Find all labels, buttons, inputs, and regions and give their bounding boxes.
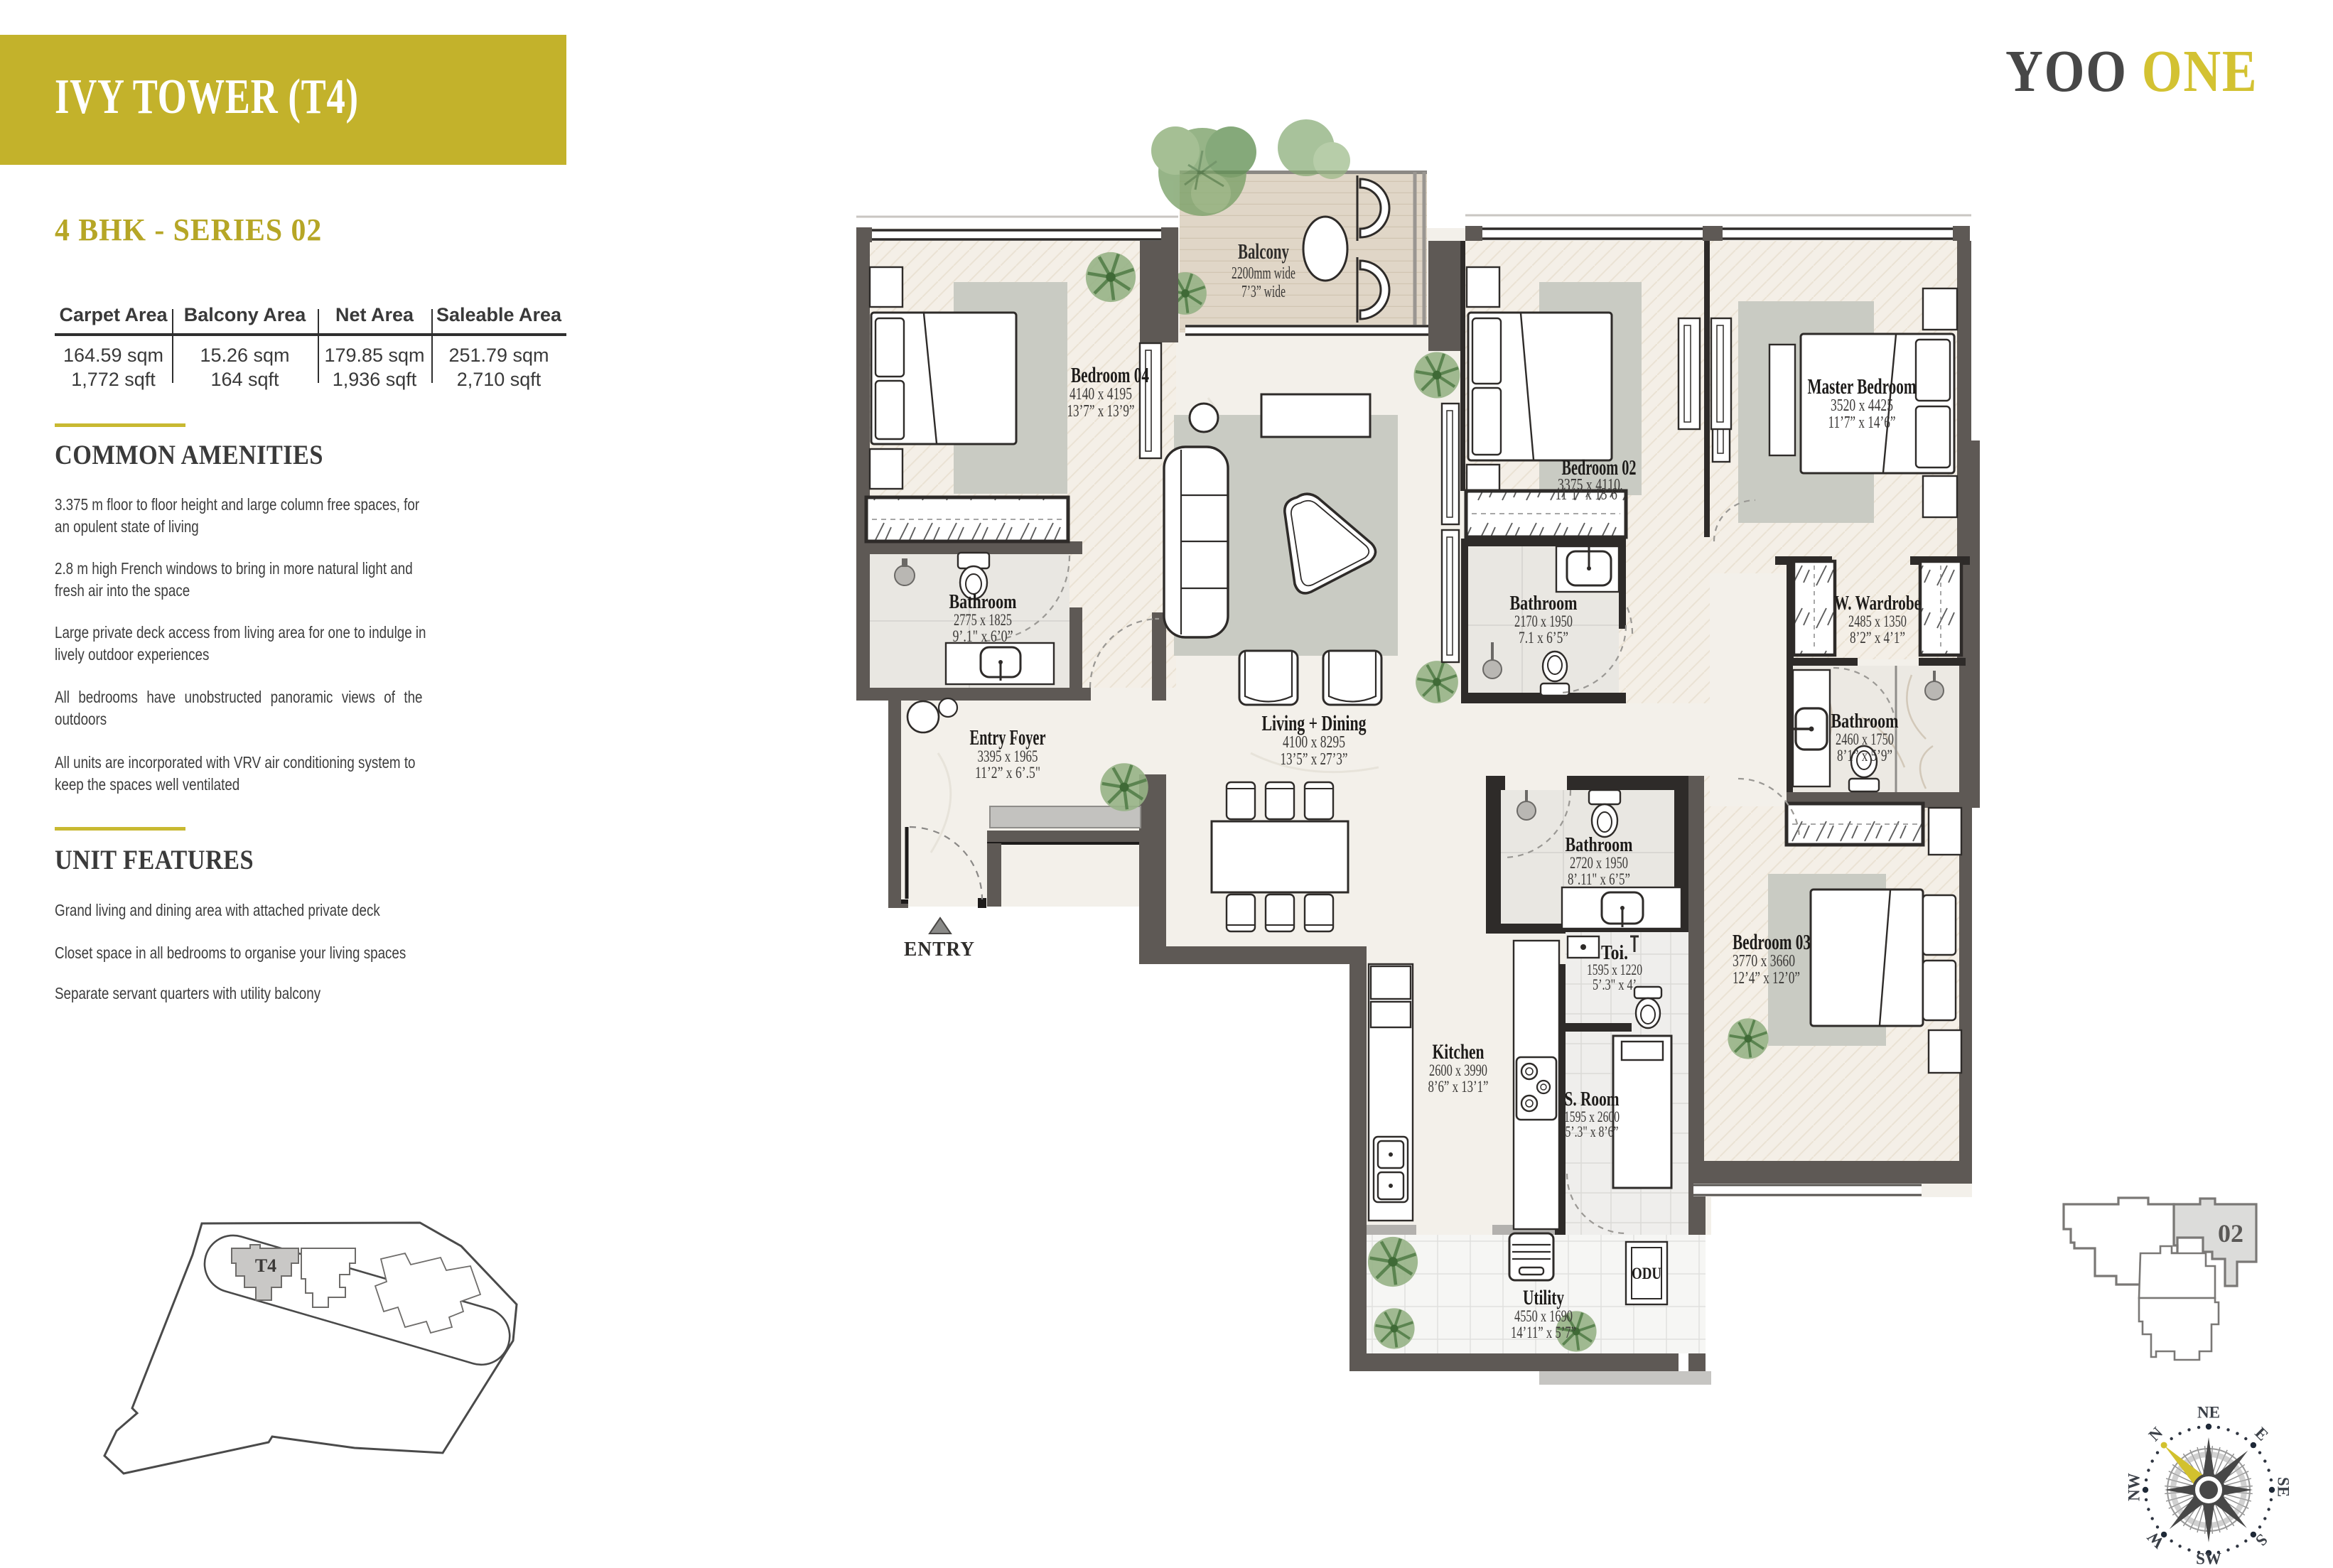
svg-text:Kitchen: Kitchen [1433,1040,1485,1064]
svg-text:8’1” x 5’9”: 8’1” x 5’9” [1837,747,1892,764]
svg-text:9’.1" x 6’0”: 9’.1" x 6’0” [953,627,1013,645]
svg-text:NW: NW [2125,1473,2143,1501]
svg-text:Bathroom: Bathroom [1510,592,1578,615]
svg-text:11’7” x 14’6”: 11’7” x 14’6” [1828,413,1896,432]
svg-text:11’1” x 13’6”: 11’1” x 13’6” [1556,485,1623,504]
svg-text:2600 x 3990: 2600 x 3990 [1429,1061,1487,1079]
svg-text:Bedroom 04: Bedroom 04 [1071,362,1149,387]
svg-text:2170 x 1950: 2170 x 1950 [1514,612,1573,630]
svg-text:2775 x 1825: 2775 x 1825 [954,611,1012,629]
svg-text:2200mm wide: 2200mm wide [1232,264,1295,283]
svg-text:8’.11" x 6’5”: 8’.11" x 6’5” [1568,870,1630,888]
svg-text:13’5” x 27’3”: 13’5” x 27’3” [1281,750,1348,769]
svg-text:8’6” x 13’1”: 8’6” x 13’1” [1428,1078,1489,1096]
svg-text:4100 x 8295: 4100 x 8295 [1283,733,1345,752]
svg-text:4140 x 4195: 4140 x 4195 [1069,385,1132,404]
svg-text:Entry Foyer: Entry Foyer [970,725,1046,750]
svg-text:13’7” x 13’9”: 13’7” x 13’9” [1067,402,1135,421]
svg-text:12’4” x 12’0”: 12’4” x 12’0” [1733,969,1800,988]
svg-text:Bathroom: Bathroom [1831,710,1899,732]
svg-text:Bedroom 03: Bedroom 03 [1733,929,1811,954]
svg-text:W. Wardrobe: W. Wardrobe [1834,592,1921,615]
svg-text:8’2” x 4’1”: 8’2” x 4’1” [1850,629,1905,647]
svg-text:NE: NE [2197,1403,2220,1421]
svg-text:Bathroom: Bathroom [949,590,1017,613]
svg-text:SW: SW [2196,1550,2221,1567]
svg-text:Master Bedroom: Master Bedroom [1808,374,1917,399]
svg-text:5’.3" x 4’: 5’.3" x 4’ [1593,975,1637,993]
svg-text:02: 02 [2218,1219,2243,1248]
svg-text:ENTRY: ENTRY [904,939,975,961]
svg-text:3770 x 3660: 3770 x 3660 [1733,952,1795,970]
svg-text:Balcony: Balcony [1238,239,1289,264]
svg-text:N: N [2145,1423,2167,1444]
svg-text:Utility: Utility [1523,1286,1564,1309]
svg-text:2460 x 1750: 2460 x 1750 [1836,730,1894,748]
svg-text:11’2” x 6’.5": 11’2” x 6’.5" [975,764,1040,782]
svg-text:2720 x 1950: 2720 x 1950 [1570,854,1628,872]
svg-text:W: W [2143,1528,2167,1552]
svg-text:Living + Dining: Living + Dining [1262,710,1367,735]
svg-text:T4: T4 [255,1255,276,1276]
svg-text:5’.3" x 8’6”: 5’.3" x 8’6” [1566,1123,1619,1140]
svg-text:3520 x 4425: 3520 x 4425 [1831,396,1893,415]
svg-text:7’3” wide: 7’3” wide [1241,283,1286,301]
svg-text:4550 x 1690: 4550 x 1690 [1514,1307,1573,1325]
svg-text:7.1 x 6’5”: 7.1 x 6’5” [1519,629,1568,647]
svg-text:2485 x 1350: 2485 x 1350 [1848,612,1907,630]
svg-text:ODU: ODU [1632,1265,1661,1282]
svg-text:SE: SE [2275,1477,2292,1497]
svg-text:E: E [2251,1424,2272,1444]
svg-text:14’11” x 5’7”: 14’11” x 5’7” [1511,1324,1576,1341]
svg-text:3395 x 1965: 3395 x 1965 [978,747,1038,765]
svg-text:Bathroom: Bathroom [1566,833,1633,856]
